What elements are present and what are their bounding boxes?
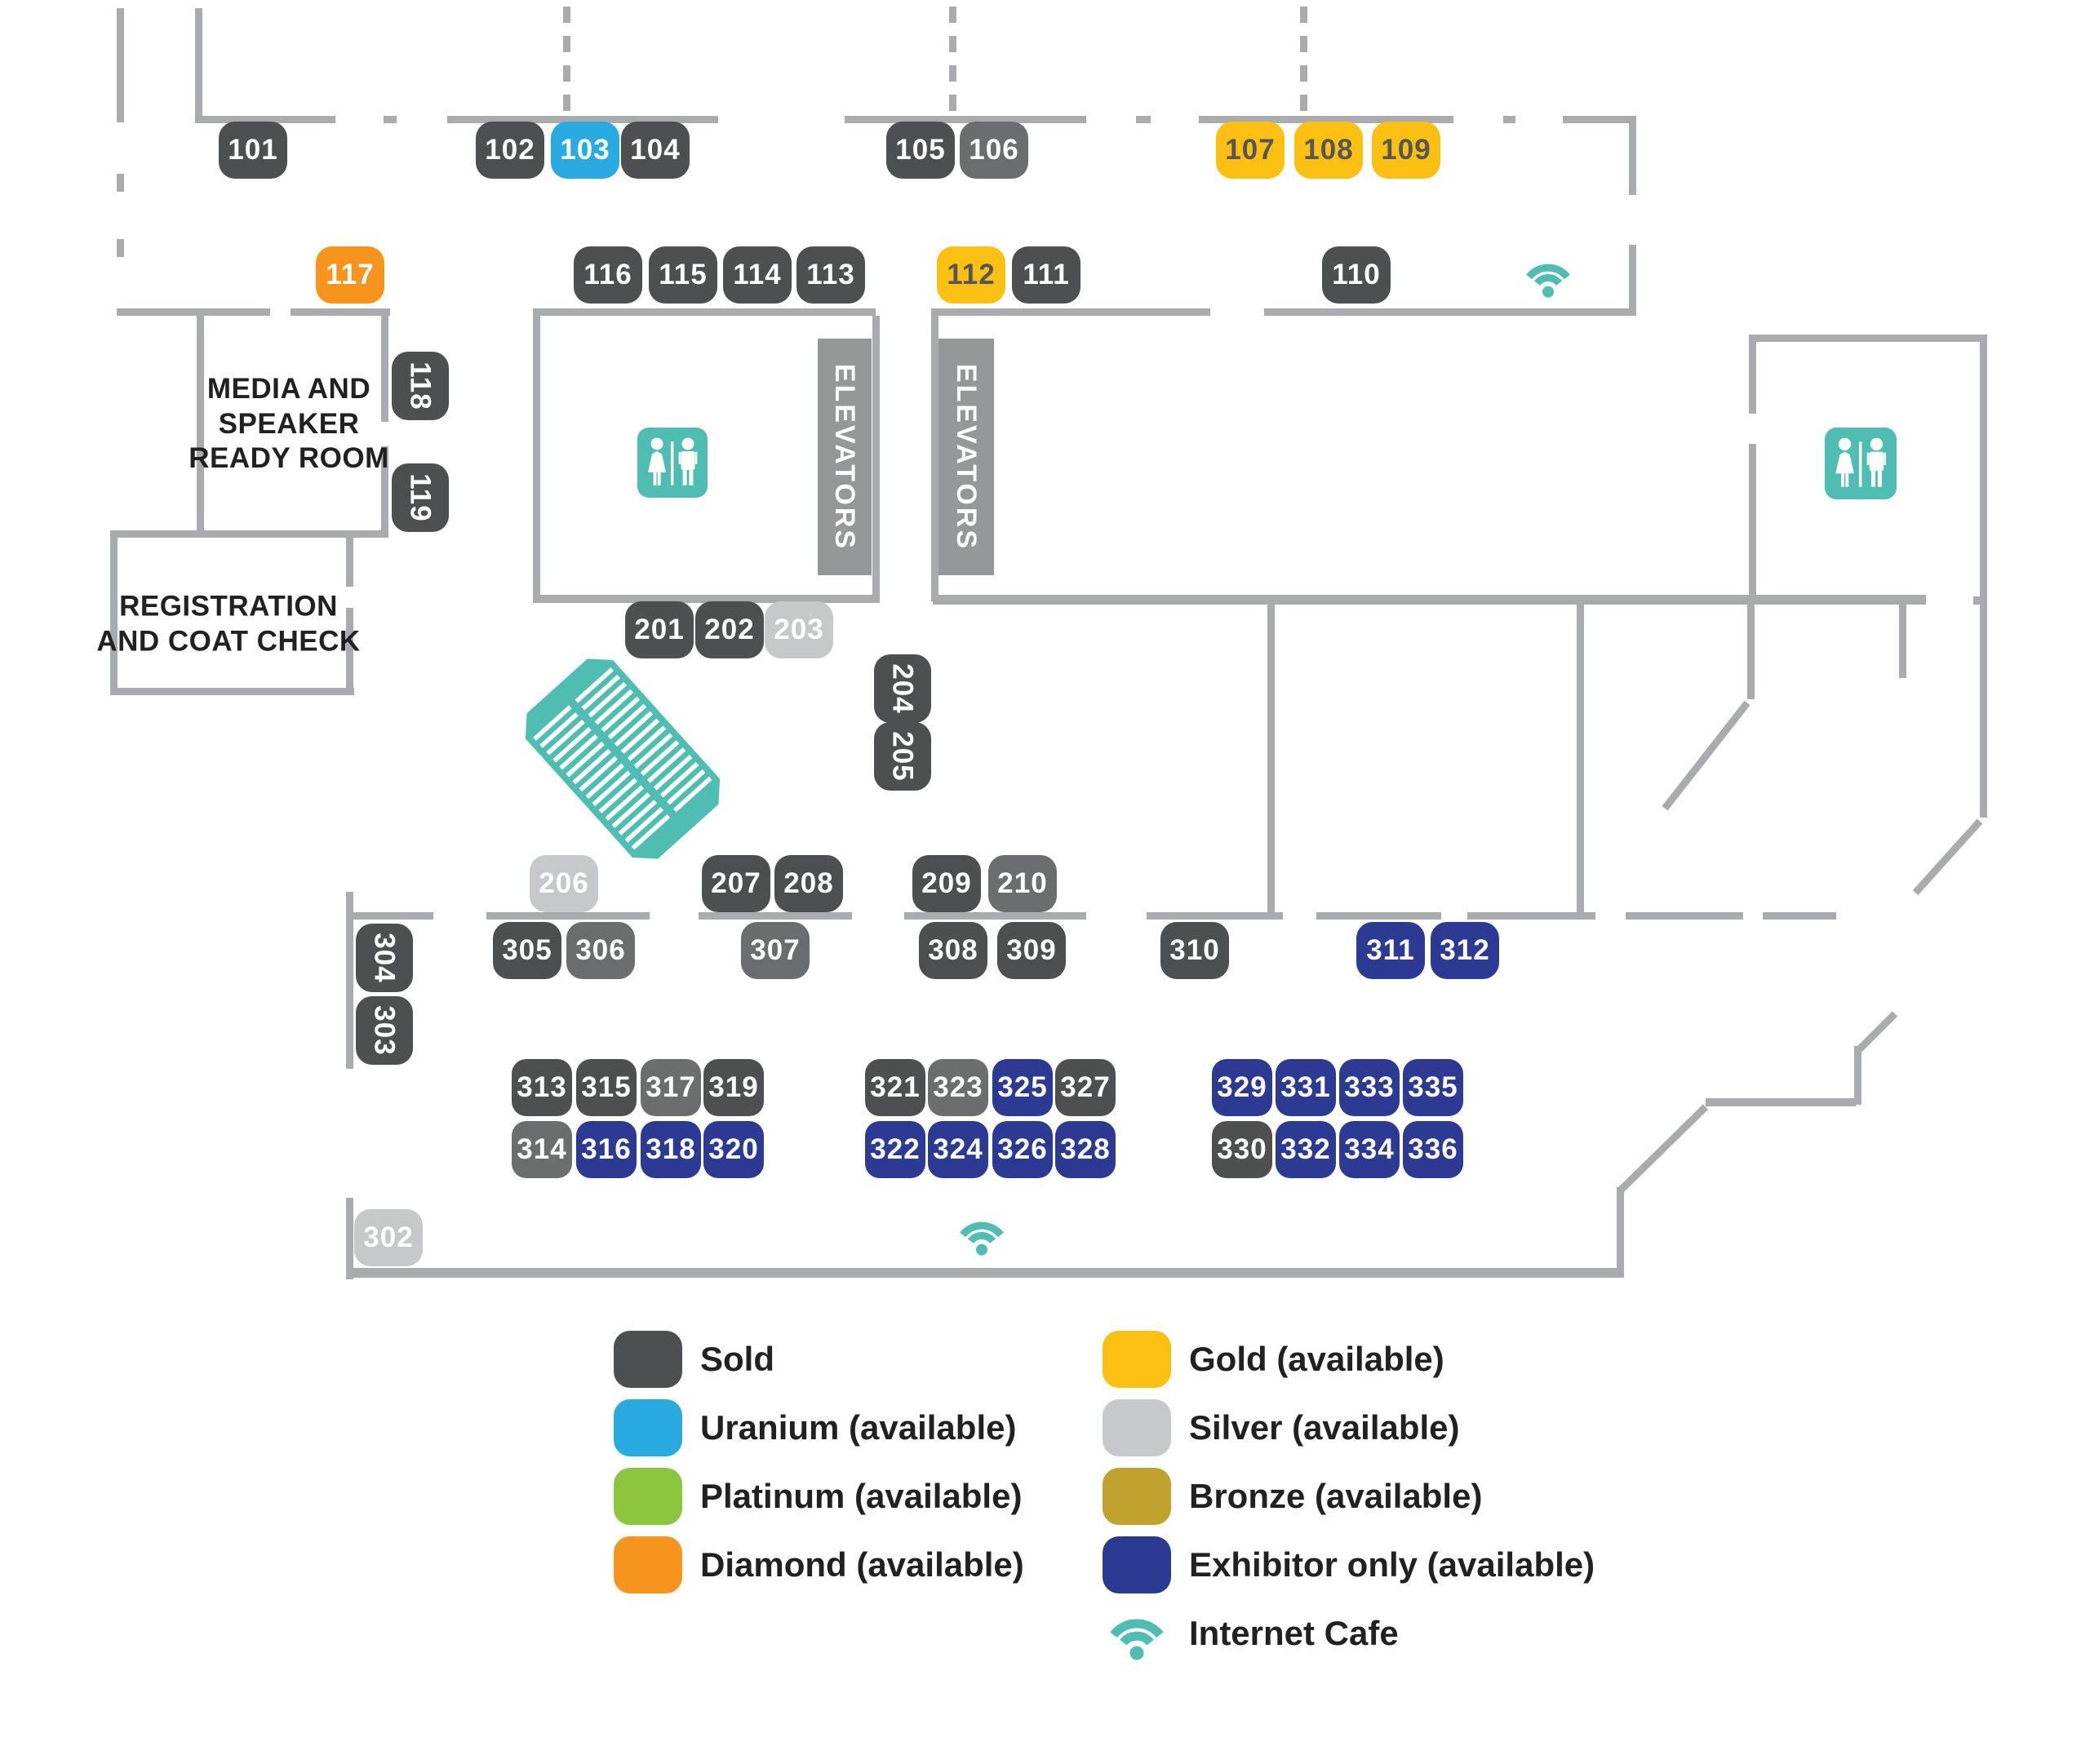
booth-number: 309 [1006, 934, 1056, 967]
wall [1577, 605, 1584, 916]
media-speaker-room-label: MEDIA AND SPEAKER READY ROOM [189, 372, 389, 476]
wall [117, 8, 124, 122]
booth-number: 118 [404, 361, 437, 410]
booth-320[interactable]: 320 [703, 1121, 764, 1178]
wall [1147, 912, 1283, 920]
legend-item-exhibitor-only-available: Exhibitor only (available) [1103, 1536, 1595, 1593]
wall [1749, 335, 1987, 342]
booth-115[interactable]: 115 [649, 246, 717, 304]
wall [117, 174, 124, 192]
legend-label: Gold (available) [1189, 1340, 1444, 1379]
registration-coat-check-label: REGISTRATION AND COAT CHECK [96, 589, 360, 658]
room-label-line: READY ROOM [189, 441, 389, 476]
wall [110, 688, 354, 695]
booth-number: 336 [1408, 1133, 1458, 1166]
booth-336[interactable]: 336 [1403, 1121, 1463, 1178]
wall [931, 308, 1210, 316]
booth-number: 110 [1332, 259, 1380, 291]
wall [291, 308, 390, 316]
booth-number: 332 [1280, 1133, 1330, 1166]
wall [1467, 912, 1595, 920]
booth-number: 335 [1408, 1071, 1458, 1104]
booth-number: 302 [363, 1221, 413, 1254]
booth-number: 203 [774, 614, 823, 646]
wall [1617, 1187, 1624, 1277]
booth-202[interactable]: 202 [695, 601, 764, 658]
legend-item-diamond-available: Diamond (available) [614, 1536, 1024, 1593]
wall [1136, 116, 1151, 123]
booth-number: 321 [870, 1071, 920, 1104]
booth-number: 317 [646, 1071, 695, 1104]
booth-number: 117 [326, 259, 374, 291]
booth-318[interactable]: 318 [641, 1121, 701, 1178]
booth-315[interactable]: 315 [576, 1059, 637, 1116]
booth-112[interactable]: 112 [937, 246, 1005, 304]
booth-208[interactable]: 208 [774, 855, 843, 912]
wall [350, 912, 433, 920]
wall [346, 1198, 353, 1279]
booth-number: 308 [928, 934, 978, 967]
wall [1854, 1046, 1861, 1105]
booth-number: 112 [947, 259, 995, 291]
booth-101[interactable]: 101 [219, 122, 287, 179]
booth-322[interactable]: 322 [865, 1121, 925, 1178]
booth-209[interactable]: 209 [912, 855, 981, 912]
booth-number: 320 [708, 1133, 758, 1166]
booth-number: 205 [886, 731, 919, 781]
wifi-icon [1103, 1605, 1171, 1662]
booth-110[interactable]: 110 [1322, 246, 1391, 304]
booth-number: 325 [997, 1071, 1047, 1104]
booth-number: 207 [711, 867, 761, 900]
booth-207[interactable]: 207 [702, 855, 770, 912]
legend-swatch-sold [614, 1331, 682, 1388]
wall [346, 1268, 1624, 1278]
wall [1563, 116, 1636, 123]
door-dashed-wall [563, 7, 570, 116]
legend-swatch-bronze [1103, 1468, 1171, 1525]
restroom-icon [1825, 428, 1897, 499]
booth-number: 202 [704, 614, 754, 646]
legend-item-silver-available: Silver (available) [1103, 1399, 1595, 1456]
legend-swatch-gold [1103, 1331, 1171, 1388]
booth-335[interactable]: 335 [1403, 1059, 1463, 1116]
wall-diagonal [1617, 1104, 1708, 1193]
booth-number: 314 [517, 1133, 566, 1166]
booth-number: 210 [997, 867, 1047, 900]
legend-label: Silver (available) [1189, 1408, 1460, 1447]
room-label-line: MEDIA AND [189, 372, 389, 407]
booth-number: 204 [886, 663, 919, 713]
booth-333[interactable]: 333 [1339, 1059, 1400, 1116]
legend-item-sold: Sold [614, 1331, 1024, 1388]
legend-swatch-exhibitor [1103, 1536, 1171, 1593]
elevator-label: ELEVATORS [951, 363, 983, 550]
booth-329[interactable]: 329 [1212, 1059, 1272, 1116]
wall [117, 308, 270, 316]
booth-204[interactable]: 204 [874, 654, 931, 723]
wall [533, 316, 540, 601]
booth-316[interactable]: 316 [576, 1121, 637, 1178]
restroom-icon [1825, 428, 1897, 499]
legend-item-platinum-available: Platinum (available) [614, 1468, 1024, 1525]
booth-number: 327 [1060, 1071, 1110, 1104]
booth-103[interactable]: 103 [551, 122, 619, 179]
legend-label: Exhibitor only (available) [1189, 1545, 1595, 1584]
booth-330[interactable]: 330 [1212, 1121, 1272, 1178]
wall [1706, 1098, 1856, 1106]
wall [1629, 120, 1636, 195]
wall [1749, 444, 1756, 601]
room-label-line: AND COAT CHECK [96, 624, 360, 659]
booth-205[interactable]: 205 [874, 722, 931, 791]
booth-number: 102 [485, 134, 535, 166]
booth-number: 307 [750, 934, 800, 967]
elevator-label: ELEVATORS [829, 363, 861, 550]
legend-item-gold-available: Gold (available) [1103, 1331, 1595, 1388]
booth-number: 209 [921, 867, 971, 900]
wall [1316, 912, 1441, 920]
booth-number: 111 [1023, 259, 1070, 291]
wifi-icon [956, 1211, 1008, 1257]
wall [1626, 912, 1743, 920]
booth-307[interactable]: 307 [741, 922, 810, 979]
booth-number: 305 [502, 934, 552, 967]
wall [1503, 116, 1515, 123]
elevator-bank-left: ELEVATORS [818, 339, 872, 575]
booth-number: 101 [228, 134, 277, 166]
wall [346, 538, 353, 587]
booth-118[interactable]: 118 [392, 352, 449, 420]
wall [931, 316, 938, 601]
legend-item-internet-cafe: Internet Cafe [1103, 1605, 1595, 1662]
booth-number: 331 [1280, 1071, 1330, 1104]
booth-number: 318 [646, 1133, 695, 1166]
wifi-icon [1522, 253, 1574, 299]
wall [872, 316, 880, 601]
booth-number: 334 [1344, 1133, 1394, 1166]
booth-314[interactable]: 314 [512, 1121, 572, 1178]
booth-number: 328 [1060, 1133, 1110, 1166]
legend-swatch-platinum [614, 1468, 682, 1525]
booth-324[interactable]: 324 [928, 1121, 988, 1178]
booth-106[interactable]: 106 [960, 122, 1028, 179]
booth-303[interactable]: 303 [356, 996, 413, 1065]
booth-number: 315 [581, 1071, 631, 1104]
booth-116[interactable]: 116 [574, 246, 642, 304]
booth-312[interactable]: 312 [1431, 922, 1499, 979]
wall [110, 530, 388, 538]
wall [845, 116, 1086, 123]
booth-326[interactable]: 326 [992, 1121, 1053, 1178]
booth-number: 103 [560, 134, 610, 166]
booth-327[interactable]: 327 [1055, 1059, 1116, 1116]
legend-label: Internet Cafe [1189, 1614, 1399, 1653]
booth-number: 108 [1303, 134, 1353, 166]
booth-331[interactable]: 331 [1276, 1059, 1336, 1116]
booth-number: 311 [1366, 934, 1414, 967]
restroom-icon [637, 428, 708, 498]
wall [904, 912, 1086, 920]
legend-label: Sold [700, 1340, 774, 1379]
booth-304[interactable]: 304 [356, 924, 413, 992]
booth-number: 322 [870, 1133, 920, 1166]
booth-number: 330 [1217, 1133, 1267, 1166]
booth-number: 316 [581, 1133, 631, 1166]
booth-325[interactable]: 325 [992, 1059, 1053, 1116]
legend-swatch-silver [1103, 1399, 1171, 1456]
wall [1264, 308, 1636, 316]
booth-number: 208 [783, 867, 833, 900]
booth-number: 105 [895, 134, 945, 166]
wall [195, 8, 202, 117]
wall [1899, 603, 1906, 678]
booth-number: 333 [1344, 1071, 1394, 1104]
booth-number: 201 [634, 614, 684, 646]
booth-105[interactable]: 105 [886, 122, 955, 179]
wall [1267, 605, 1275, 916]
booth-104[interactable]: 104 [621, 122, 690, 179]
booth-number: 104 [630, 134, 680, 166]
legend-swatch-uranium [614, 1399, 682, 1456]
booth-210[interactable]: 210 [988, 855, 1057, 912]
legend-label: Diamond (available) [700, 1545, 1024, 1584]
booth-number: 319 [708, 1071, 758, 1104]
legend-label: Platinum (available) [700, 1477, 1022, 1516]
booth-328[interactable]: 328 [1055, 1121, 1116, 1178]
wall [1763, 912, 1836, 920]
booth-109[interactable]: 109 [1372, 122, 1440, 179]
booth-323[interactable]: 323 [928, 1059, 988, 1116]
booth-111[interactable]: 111 [1012, 246, 1080, 304]
legend-swatch-diamond [614, 1536, 682, 1593]
wall-diagonal [1662, 701, 1750, 811]
wall [1749, 342, 1756, 414]
elevator-bank-right: ELEVATORS [938, 339, 994, 575]
legend-label: Bronze (available) [1189, 1477, 1482, 1516]
legend-item-uranium-available: Uranium (available) [614, 1399, 1024, 1456]
wall [933, 595, 1926, 605]
booth-321[interactable]: 321 [865, 1059, 925, 1116]
door-dashed-wall [949, 7, 956, 116]
booth-number: 119 [404, 473, 437, 521]
wifi-icon [956, 1211, 1008, 1257]
booth-117[interactable]: 117 [316, 246, 384, 304]
booth-113[interactable]: 113 [796, 246, 865, 304]
booth-number: 324 [933, 1133, 983, 1166]
wifi-icon [1105, 1606, 1169, 1661]
restroom-icon [637, 428, 708, 498]
booth-107[interactable]: 107 [1216, 122, 1285, 179]
booth-number: 326 [997, 1133, 1047, 1166]
exhibit-floor-plan: ELEVATORS ELEVATORS MEDIA AND SPEAKER RE… [0, 0, 2081, 1764]
booth-119[interactable]: 119 [392, 463, 449, 532]
booth-number: 310 [1169, 934, 1219, 967]
legend-item-bronze-available: Bronze (available) [1103, 1468, 1595, 1525]
legend-column-right: Gold (available)Silver (available)Bronze… [1103, 1331, 1595, 1662]
booth-number: 303 [368, 1005, 401, 1055]
booth-108[interactable]: 108 [1294, 122, 1363, 179]
booth-number: 313 [517, 1071, 566, 1104]
wall-diagonal [1913, 818, 1983, 895]
booth-332[interactable]: 332 [1276, 1121, 1336, 1178]
wall [384, 116, 397, 123]
booth-310[interactable]: 310 [1160, 922, 1229, 979]
booth-number: 114 [733, 259, 781, 291]
wall [1747, 603, 1755, 699]
booth-number: 306 [575, 934, 625, 967]
booth-number: 323 [933, 1071, 983, 1104]
booth-number: 206 [539, 867, 588, 900]
booth-203[interactable]: 203 [765, 601, 833, 658]
booth-number: 107 [1225, 134, 1275, 166]
wall [1980, 335, 1987, 818]
booth-311[interactable]: 311 [1356, 922, 1425, 979]
booth-number: 113 [806, 259, 854, 291]
booth-number: 106 [969, 134, 1018, 166]
booth-201[interactable]: 201 [625, 601, 694, 658]
booth-308[interactable]: 308 [919, 922, 987, 979]
booth-number: 329 [1217, 1071, 1267, 1104]
door-dashed-wall [1300, 7, 1307, 116]
booth-334[interactable]: 334 [1339, 1121, 1400, 1178]
booth-305[interactable]: 305 [493, 922, 561, 979]
booth-313[interactable]: 313 [512, 1059, 572, 1116]
booth-319[interactable]: 319 [703, 1059, 764, 1116]
wall [117, 239, 124, 257]
wall [533, 308, 876, 316]
wall [1629, 245, 1636, 312]
room-label-line: REGISTRATION [96, 589, 360, 624]
booth-number: 109 [1381, 134, 1431, 166]
booth-114[interactable]: 114 [723, 246, 792, 304]
booth-number: 115 [659, 259, 707, 291]
booth-102[interactable]: 102 [476, 122, 544, 179]
wall-diagonal [1855, 1011, 1897, 1053]
booth-number: 312 [1440, 934, 1489, 967]
booth-306[interactable]: 306 [566, 922, 635, 979]
booth-317[interactable]: 317 [641, 1059, 701, 1116]
booth-309[interactable]: 309 [997, 922, 1066, 979]
booth-number: 116 [583, 259, 632, 291]
booth-number: 304 [368, 933, 401, 982]
legend-label: Uranium (available) [700, 1408, 1016, 1447]
room-label-line: SPEAKER [189, 407, 389, 442]
legend-column-left: SoldUranium (available)Platinum (availab… [614, 1331, 1024, 1593]
booth-302[interactable]: 302 [354, 1209, 423, 1266]
booth-206[interactable]: 206 [530, 855, 598, 912]
wifi-icon [1522, 253, 1574, 299]
